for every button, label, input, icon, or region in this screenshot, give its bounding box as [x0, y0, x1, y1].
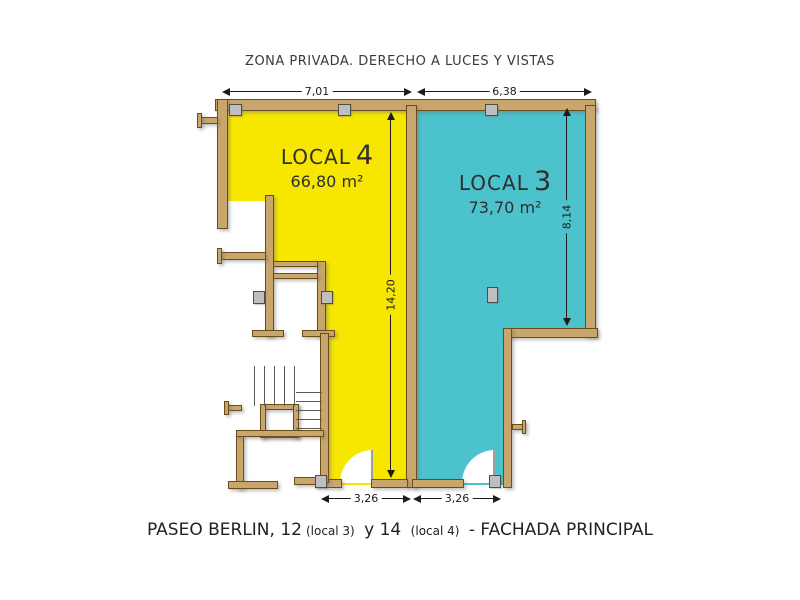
dim-depth-local4-value: 14,20: [384, 275, 397, 315]
column-top-2: [338, 104, 351, 116]
caption-local3-note: (local 3): [306, 524, 355, 538]
local4-title: LOCAL 4: [247, 140, 407, 171]
wall-bottom-local3: [412, 479, 464, 488]
column-local3-door: [489, 475, 501, 488]
wall-vestibule-bar2: [273, 273, 318, 279]
wall-right-upper: [585, 105, 596, 337]
stair-tread: [296, 410, 322, 411]
dim-width-local4-value: 7,01: [302, 85, 333, 98]
local4-label-block: LOCAL 4 66,80 m²: [247, 140, 407, 191]
dim-door-local3-value: 3,26: [442, 492, 473, 505]
wall-stub-midleft: [220, 252, 266, 260]
local3-number: 3: [534, 166, 551, 197]
caption-facade: - FACHADA PRINCIPAL: [469, 520, 653, 540]
wall-local4-left-lower: [320, 333, 329, 483]
local4-number: 4: [356, 140, 373, 171]
wall-stub-topleft-cap: [197, 113, 202, 128]
dim-width-local3-value: 6,38: [489, 85, 520, 98]
wall-bottom-local4-right: [371, 479, 408, 488]
local4-area: 66,80 m²: [247, 172, 407, 191]
local3-title: LOCAL 3: [425, 166, 585, 197]
floor-plan-canvas: ZONA PRIVADA. DERECHO A LUCES Y VISTAS: [0, 0, 800, 600]
dim-width-local3: 6,38: [417, 87, 592, 96]
stair-tread: [296, 401, 322, 402]
wall-room-top: [236, 430, 324, 437]
caption-and: y 14: [364, 520, 401, 540]
wall-stub-landing-cap: [224, 401, 229, 415]
local4-name: LOCAL: [281, 145, 351, 169]
plan-title: ZONA PRIVADA. DERECHO A LUCES Y VISTAS: [0, 54, 800, 69]
wall-step: [503, 328, 598, 338]
wall-left-upper: [217, 99, 228, 229]
caption-local4-note: (local 4): [411, 524, 460, 538]
stair-tread: [254, 366, 255, 406]
dim-door-local3: 3,26: [413, 494, 501, 503]
wall-right-lower: [503, 328, 512, 488]
caption-street: PASEO BERLIN, 12: [147, 520, 302, 540]
local3-label-block: LOCAL 3 73,70 m²: [425, 166, 585, 217]
stair-tread: [274, 366, 275, 406]
wall-vestibule-bar1: [273, 261, 318, 267]
column-local4-door: [315, 475, 327, 488]
column-local3-mid: [487, 287, 498, 303]
column-top-3: [485, 104, 498, 116]
wall-stub-topleft: [200, 117, 218, 124]
dim-width-local4: 7,01: [222, 87, 412, 96]
column-vestibule-right: [321, 291, 333, 304]
wall-foot-right: [302, 330, 335, 337]
wall-stub-landing-left: [227, 405, 242, 411]
wall-foot-left: [252, 330, 284, 337]
dim-door-local4: 3,26: [321, 494, 411, 503]
dim-door-local4-value: 3,26: [351, 492, 382, 505]
local3-name: LOCAL: [459, 171, 529, 195]
stair-tread: [264, 366, 265, 406]
stair-tread: [296, 428, 322, 429]
stair-tread: [296, 392, 322, 393]
column-vestibule-left: [253, 291, 265, 304]
wall-stub-midleft-cap: [217, 248, 222, 264]
dim-depth-local3: 8,14: [562, 108, 571, 326]
stair-tread: [296, 419, 322, 420]
column-top-1: [229, 104, 242, 116]
local3-area: 73,70 m²: [425, 198, 585, 217]
stair-tread: [284, 366, 285, 406]
wall-divider: [406, 105, 417, 488]
address-caption: PASEO BERLIN, 12(local 3) y 14 (local 4)…: [0, 520, 800, 540]
stair-tread: [294, 366, 295, 406]
wall-room-bottom-left: [228, 481, 278, 489]
wall-stub-right-cap: [522, 420, 526, 434]
